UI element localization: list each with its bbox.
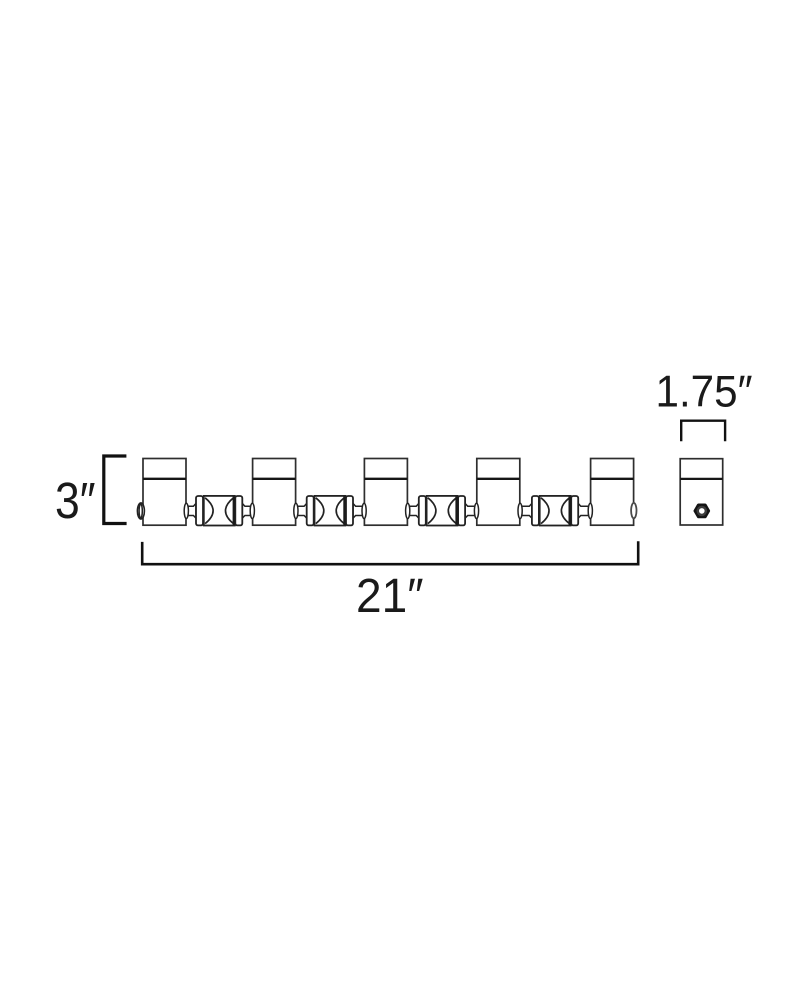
svg-text:1.75″: 1.75″ xyxy=(656,368,753,417)
svg-text:3″: 3″ xyxy=(55,472,96,529)
svg-text:21″: 21″ xyxy=(356,569,424,623)
